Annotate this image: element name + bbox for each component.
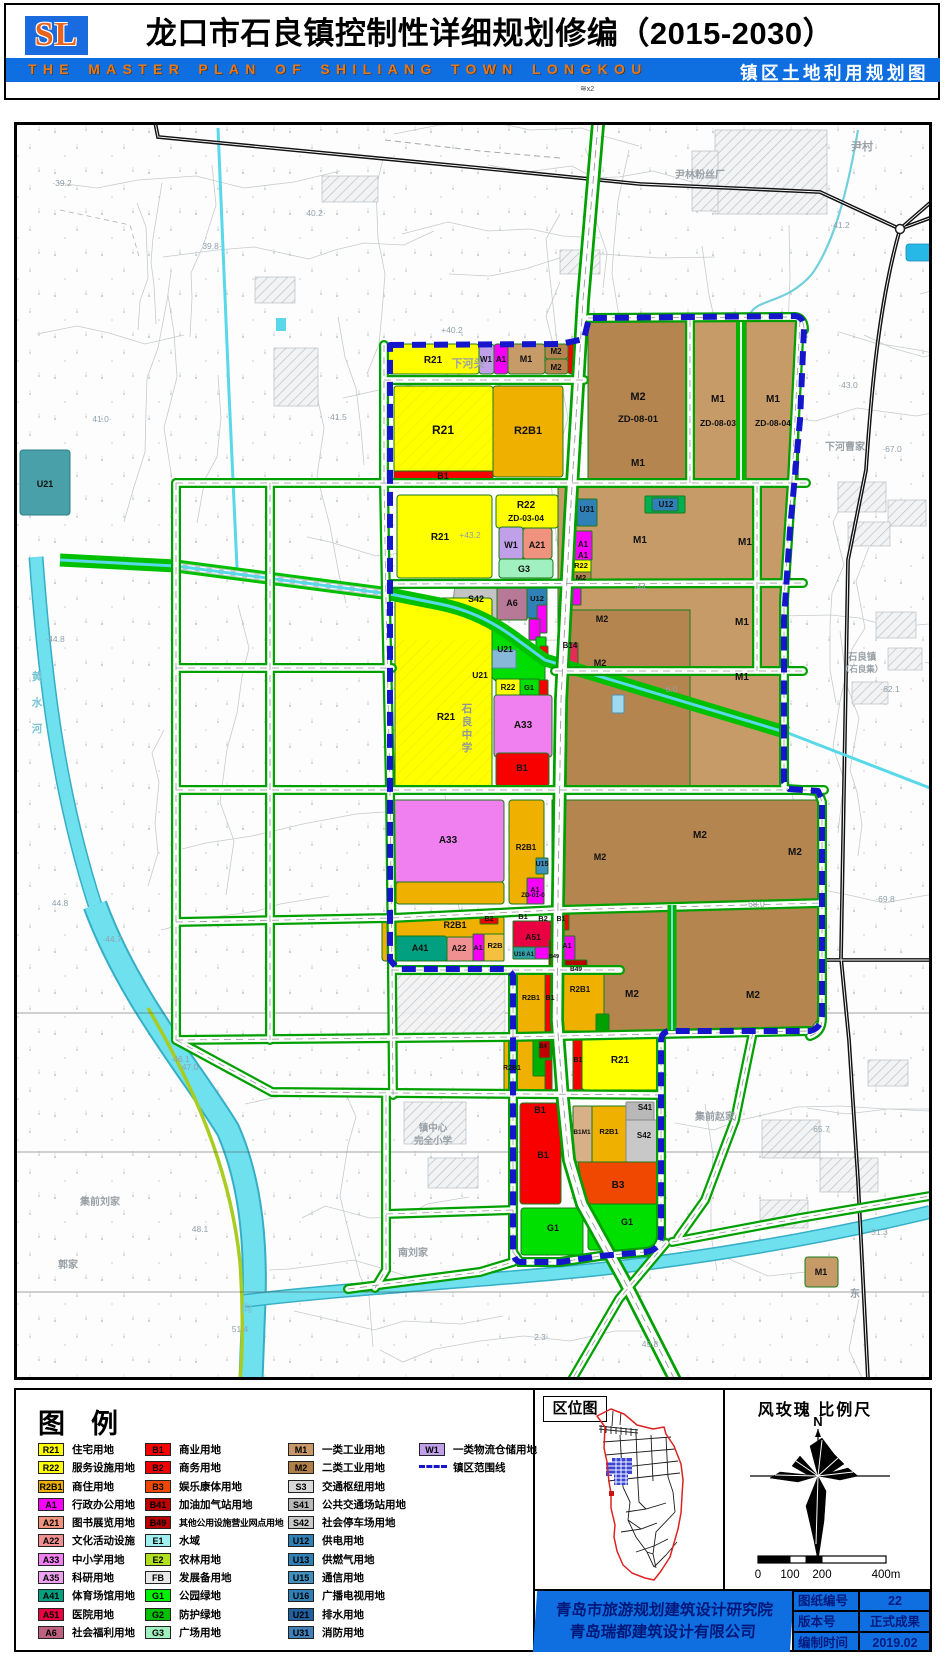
svg-text:R2B1: R2B1	[516, 843, 537, 852]
svg-text:·6.0: ·6.0	[663, 684, 678, 694]
svg-text:R2B1: R2B1	[570, 985, 591, 994]
svg-text:R21: R21	[431, 532, 450, 543]
svg-text:B1: B1	[537, 1150, 549, 1160]
svg-text:B4: B4	[539, 1044, 547, 1050]
svg-text:M2: M2	[788, 847, 802, 858]
svg-text:B1: B1	[516, 763, 528, 773]
svg-text:R22: R22	[501, 683, 516, 692]
svg-text:39.8·: 39.8·	[202, 241, 221, 251]
svg-text:A1: A1	[563, 943, 572, 950]
svg-text:R22: R22	[574, 561, 588, 570]
svg-text:石: 石	[461, 703, 473, 715]
svg-text:郭家: 郭家	[58, 1258, 79, 1271]
svg-text:G1: G1	[524, 683, 534, 692]
svg-text:B1: B1	[437, 471, 449, 481]
svg-text:A21: A21	[529, 540, 546, 550]
svg-text:400m: 400m	[872, 1569, 901, 1581]
svg-text:下河曹家: 下河曹家	[825, 440, 866, 453]
svg-text:G1: G1	[621, 1217, 633, 1227]
svg-text:·44.7: ·44.7	[102, 934, 122, 944]
svg-text:向: 向	[242, 1302, 252, 1315]
svg-text:·51.3: ·51.3	[868, 1227, 888, 1237]
svg-text:A1: A1	[578, 551, 589, 560]
svg-text:尹林粉丝厂: 尹林粉丝厂	[675, 168, 725, 181]
svg-text:·39.2: ·39.2	[52, 178, 72, 188]
svg-text:M1: M1	[738, 537, 752, 548]
svg-text:R21: R21	[424, 355, 443, 366]
svg-text:·62.1: ·62.1	[880, 684, 900, 694]
svg-text:M2: M2	[550, 363, 562, 372]
svg-text:44.8: 44.8	[52, 898, 69, 908]
svg-text:200: 200	[812, 1569, 831, 1581]
svg-text:R2B1: R2B1	[599, 1127, 618, 1136]
svg-text:B1: B1	[534, 1105, 546, 1115]
svg-text:A6: A6	[506, 598, 518, 608]
svg-text:2.3: 2.3	[534, 1332, 546, 1342]
svg-text:·67.0: ·67.0	[882, 444, 902, 454]
svg-text:东: 东	[850, 1287, 860, 1300]
svg-text:M2: M2	[625, 989, 639, 1000]
svg-text:M1: M1	[520, 354, 533, 364]
svg-text:R2B1: R2B1	[514, 425, 542, 437]
svg-text:R2B1: R2B1	[503, 1065, 521, 1072]
svg-text:·41.5: ·41.5	[327, 412, 347, 422]
svg-text:R21: R21	[611, 1055, 630, 1066]
svg-text:S42: S42	[468, 594, 484, 604]
svg-text:A41: A41	[412, 943, 429, 953]
svg-text:A51: A51	[525, 932, 541, 942]
svg-text:·65.7: ·65.7	[810, 1124, 830, 1134]
svg-text:U12: U12	[530, 594, 544, 603]
svg-text:N: N	[813, 1414, 822, 1429]
svg-text:B2: B2	[485, 916, 494, 923]
svg-text:U21: U21	[497, 644, 513, 654]
svg-text:集前刘家: 集前刘家	[79, 1195, 121, 1208]
svg-text:U21: U21	[37, 479, 54, 489]
svg-text:G3: G3	[518, 564, 530, 574]
svg-text:M2: M2	[693, 830, 707, 841]
svg-text:ZD-01-0: ZD-01-0	[521, 892, 545, 899]
svg-text:M1: M1	[633, 535, 647, 546]
svg-text:+43.2: +43.2	[459, 530, 481, 540]
svg-text:A33: A33	[439, 835, 458, 846]
svg-text:良: 良	[462, 715, 473, 728]
svg-text:集前赵家: 集前赵家	[694, 1110, 736, 1123]
svg-text:A22: A22	[452, 944, 467, 953]
svg-text:镇中心: 镇中心	[419, 1122, 448, 1134]
svg-text:·41.2: ·41.2	[830, 220, 850, 230]
svg-text:M1: M1	[766, 394, 780, 405]
svg-text:A1: A1	[578, 540, 589, 549]
svg-text:R2B1: R2B1	[522, 995, 540, 1002]
svg-text:A1: A1	[496, 355, 507, 364]
svg-text:·44.8: ·44.8	[45, 634, 65, 644]
svg-text:U31: U31	[580, 505, 595, 514]
svg-text:M1: M1	[735, 617, 749, 628]
svg-text:R2B: R2B	[487, 941, 503, 950]
svg-text:完全小学: 完全小学	[414, 1135, 453, 1147]
svg-text:尹村: 尹村	[851, 139, 873, 153]
svg-text:S41: S41	[638, 1103, 653, 1112]
svg-text:B1M1: B1M1	[573, 1129, 591, 1136]
svg-text:M1: M1	[735, 672, 749, 683]
svg-text:M1: M1	[631, 458, 645, 469]
svg-text:100: 100	[780, 1569, 799, 1581]
svg-text:B1: B1	[546, 995, 555, 1002]
svg-text:A33: A33	[514, 720, 533, 731]
svg-text:U15: U15	[536, 861, 549, 868]
svg-text:B1: B1	[518, 912, 528, 921]
svg-text:M2: M2	[746, 990, 760, 1001]
svg-text:·43.0: ·43.0	[838, 380, 858, 390]
svg-text:R21: R21	[432, 423, 454, 437]
svg-text:41.0·: 41.0·	[92, 414, 111, 424]
svg-text:R21: R21	[437, 712, 456, 723]
svg-text:M2: M2	[550, 347, 562, 356]
svg-text:U21: U21	[472, 670, 488, 680]
svg-text:A1: A1	[474, 945, 483, 952]
svg-text:下河头: 下河头	[452, 356, 485, 370]
svg-text:ZD-03-04: ZD-03-04	[508, 513, 544, 523]
svg-text:0: 0	[755, 1569, 761, 1581]
svg-text:学: 学	[462, 741, 473, 754]
svg-text:M2: M2	[594, 852, 607, 862]
svg-text:石良镇: 石良镇	[847, 651, 877, 663]
svg-text:51.4: 51.4	[232, 1324, 249, 1334]
svg-text:·44: ·44	[634, 582, 647, 592]
svg-text:B1: B1	[557, 916, 566, 923]
svg-text:W1: W1	[504, 540, 518, 550]
svg-text:M2: M2	[630, 391, 645, 403]
svg-text:M1: M1	[711, 394, 725, 405]
svg-text:U16 A1: U16 A1	[514, 952, 535, 958]
svg-text:40.2·: 40.2·	[306, 208, 325, 218]
svg-text:ZD-08-04: ZD-08-04	[755, 418, 791, 428]
svg-text:S42: S42	[637, 1131, 652, 1140]
svg-text:南刘家: 南刘家	[398, 1246, 429, 1259]
svg-text:ZD-08-03: ZD-08-03	[700, 418, 736, 428]
svg-text:B1: B1	[574, 1057, 583, 1064]
svg-text:47.0: 47.0	[182, 1062, 199, 1072]
svg-text:河: 河	[32, 723, 43, 735]
svg-text:（石良集）: （石良集）	[841, 664, 884, 674]
svg-text:B49: B49	[549, 954, 559, 960]
svg-text:·69.8: ·69.8	[875, 894, 895, 904]
svg-text:R22: R22	[517, 500, 536, 511]
svg-text:·68.0: ·68.0	[745, 899, 765, 909]
svg-text:R2B1: R2B1	[443, 920, 466, 930]
svg-text:M1: M1	[815, 1267, 828, 1277]
svg-text:水: 水	[31, 696, 43, 709]
svg-text:G1: G1	[547, 1223, 559, 1233]
svg-text:中: 中	[462, 728, 473, 741]
svg-text:+40.2: +40.2	[441, 325, 463, 335]
svg-text:B14: B14	[563, 641, 578, 650]
svg-text:U12: U12	[659, 500, 674, 509]
svg-text:48.1: 48.1	[192, 1224, 209, 1234]
svg-text:B3: B3	[612, 1180, 625, 1191]
svg-text:B2: B2	[538, 914, 548, 923]
svg-text:M2: M2	[596, 614, 609, 624]
svg-text:M2: M2	[594, 658, 607, 668]
svg-text:49.8: 49.8	[642, 1339, 659, 1349]
svg-text:ZD-08-01: ZD-08-01	[618, 414, 659, 425]
svg-text:黄: 黄	[32, 670, 43, 683]
svg-text:M2: M2	[576, 573, 586, 582]
svg-text:B49: B49	[570, 966, 582, 973]
